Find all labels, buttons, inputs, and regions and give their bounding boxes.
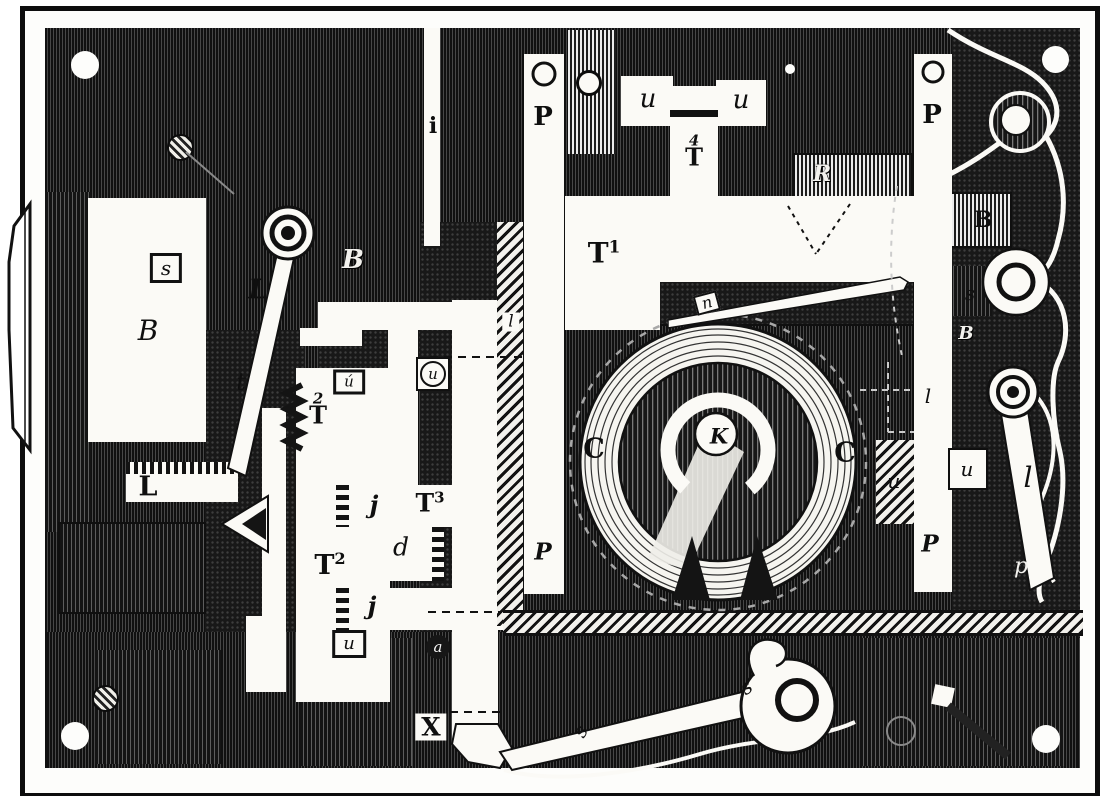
part-label-u-top-right: u — [733, 87, 750, 113]
part-label-l-small: l — [502, 313, 519, 332]
part-label-B-magnet: B — [138, 317, 159, 345]
pillar-hole — [533, 63, 555, 85]
part-label-a-pivot: a — [426, 635, 450, 659]
part-label-P-left-bottom: P — [534, 541, 551, 564]
part-label-j-lower: j — [368, 594, 377, 618]
part-label-C-right: C — [834, 440, 856, 467]
part-label-d-rack: d — [393, 535, 409, 560]
part-label-s-right: s — [965, 283, 975, 303]
part-label-u-right: u — [961, 459, 974, 479]
part-label-i-rod: i — [429, 115, 437, 137]
part-label-u-hatch: u — [888, 471, 901, 491]
part-label-u-circled: u — [416, 357, 450, 391]
part-label-T2-lower: T2 — [314, 551, 345, 579]
lever-arm-s — [500, 692, 752, 770]
part-label-P-right-top: P — [922, 102, 942, 128]
part-label-l-dashed: l — [925, 386, 931, 406]
part-label-s-magnet: s — [150, 253, 182, 283]
engraving-figure: sBLBt2TúuliPPuu4TT1nRPBsBluuPlpCCKjT3dT2… — [0, 0, 1110, 796]
part-label-j-upper: j — [370, 493, 379, 517]
boss-hole — [778, 681, 816, 719]
side-latch-tab — [9, 204, 30, 450]
part-label-T4: 4T — [685, 125, 703, 166]
part-label-C-left: C — [583, 436, 605, 463]
part-label-L-bottom: L — [139, 474, 158, 501]
part-label-T3: T3 — [415, 490, 444, 515]
part-label-R-script: R — [813, 163, 831, 185]
part-label-u-accent: ú — [333, 370, 365, 395]
part-label-B-right: B — [974, 209, 993, 231]
part-label-T1: T1 — [588, 238, 621, 267]
mechanism-drawing — [0, 0, 1110, 796]
part-label-X-bottom: X — [415, 714, 446, 741]
part-label-u-top-left: u — [640, 86, 657, 112]
spring-teeth — [286, 385, 302, 449]
part-label-t-lever: t — [236, 370, 246, 394]
part-label-L-lever: L — [249, 277, 268, 304]
dashed-guides — [788, 204, 850, 254]
part-label-P-left-top: P — [533, 104, 553, 130]
pillar-hole — [923, 62, 943, 82]
part-label-P-right-bottom: P — [921, 533, 938, 556]
part-label-p-right: p — [1014, 556, 1028, 578]
part-label-B-script-left: B — [342, 247, 364, 273]
part-label-u-bottom: u — [332, 630, 366, 658]
part-label-l-arm: l — [1024, 464, 1033, 492]
part-label-B-script-right: B — [958, 325, 973, 343]
part-label-K-center: K — [710, 426, 728, 447]
pin — [948, 706, 1008, 756]
lever-foot — [452, 724, 512, 768]
part-label-T2-upper: 2T — [309, 383, 327, 424]
